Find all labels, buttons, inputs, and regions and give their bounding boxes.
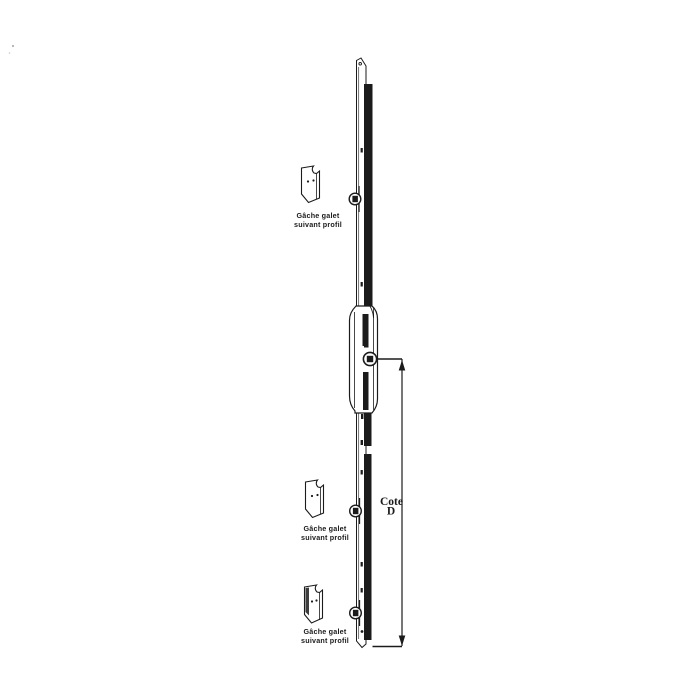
espagnolette-technical-drawing: Cote D Gâche galet suivant profil Gâche …: [0, 0, 700, 700]
drive-bar-lower-b: [364, 454, 372, 640]
roller-hub: [352, 196, 358, 202]
strike-plate-top-label-line1: Gâche galet: [297, 211, 340, 220]
screw-mark: [361, 440, 363, 445]
gearbox-housing: [350, 300, 378, 413]
strike-plate-hole: [311, 495, 313, 497]
gearbox-screw-upper: [364, 343, 369, 348]
screw-mark: [361, 148, 363, 153]
strike-plate-hole: [307, 180, 309, 182]
roller-hub: [353, 610, 359, 616]
strike-plate-bottom: [305, 585, 323, 623]
dimension-label-d: D: [387, 506, 395, 518]
roller-top: [349, 186, 361, 212]
noise-speck: [12, 45, 14, 47]
screw-mark: [361, 282, 363, 287]
espagnolette-rod: [349, 58, 377, 648]
strike-plate-bottom-label-line1: Gâche galet: [304, 627, 347, 636]
strike-plate-hole: [315, 599, 317, 601]
strike-plate-hole: [311, 600, 313, 602]
dimension-arrow-up: [399, 360, 406, 371]
strike-plate-top-label-line2: suivant profil: [294, 220, 342, 229]
gearbox-slide-lower: [363, 372, 369, 410]
dimension-arrow-down: [399, 636, 406, 647]
strike-plate-shading: [306, 588, 310, 616]
drive-bar-lower-a: [364, 412, 372, 446]
roller-middle: [350, 498, 362, 524]
drive-bar-upper: [364, 84, 373, 308]
scan-noise: [9, 45, 14, 54]
strike-plate-middle-label-line1: Gâche galet: [304, 524, 347, 533]
roller-bottom: [350, 600, 362, 626]
faceplate-bottom-hole: [361, 630, 364, 633]
strike-plate-middle: [306, 480, 324, 518]
strike-plate-hole: [316, 494, 318, 496]
strike-plate-middle-label-line2: suivant profil: [301, 533, 349, 542]
roller-hub: [353, 508, 359, 514]
screw-mark: [361, 588, 363, 593]
screw-mark: [361, 470, 363, 475]
strike-plate-top: [302, 166, 320, 203]
strike-plate-bottom-label-line2: suivant profil: [301, 636, 349, 645]
spindle-square-hole: [367, 356, 373, 362]
screw-mark: [361, 562, 363, 567]
noise-speck: [9, 52, 11, 54]
strike-plate-hole: [312, 179, 314, 181]
screw-mark: [361, 414, 363, 419]
figure-canvas: Cote D Gâche galet suivant profil Gâche …: [0, 0, 700, 700]
gearbox-slide-upper: [363, 314, 369, 346]
